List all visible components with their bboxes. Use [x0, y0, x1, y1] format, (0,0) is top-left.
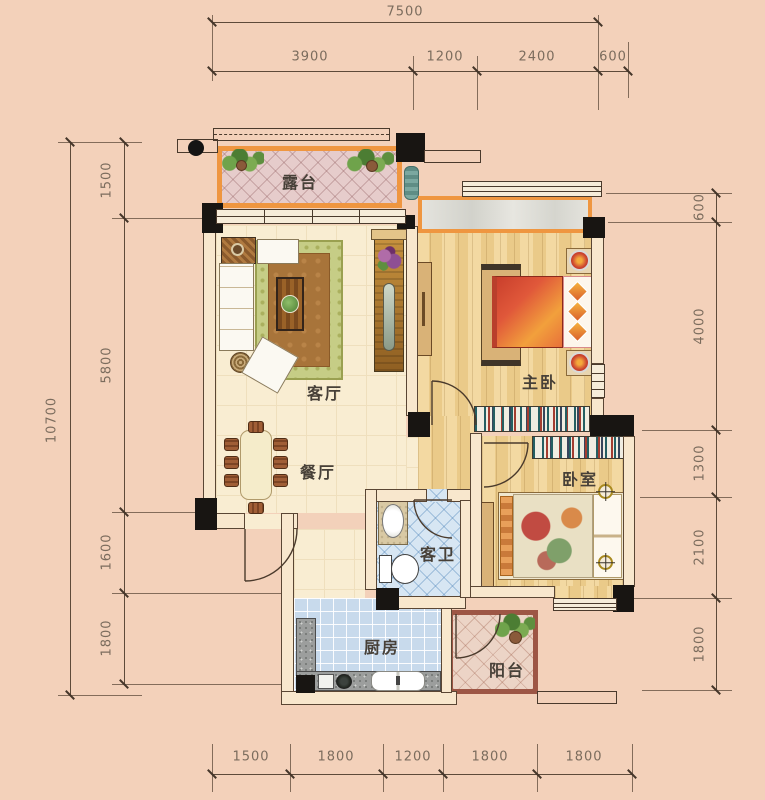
room-label-kitchen: 厨房	[364, 634, 400, 658]
porch-column-dot	[188, 140, 204, 156]
dim-label: 1800	[317, 750, 354, 765]
terrace-jar	[404, 166, 419, 200]
floor-hall-sliver	[406, 437, 418, 489]
dining-chair	[248, 502, 264, 514]
room-label-living: 客厅	[307, 380, 343, 404]
window-living-south-of-terrace	[216, 209, 406, 224]
bedroom-bed-duvet	[513, 494, 593, 578]
window-master-east	[591, 364, 605, 398]
table-lamp	[569, 352, 590, 373]
bath-sink	[382, 504, 404, 538]
closet-bedroom-north	[532, 436, 625, 459]
master-bedroom-door	[430, 379, 479, 429]
extension-line	[632, 744, 633, 792]
dim-line-left-segments	[124, 142, 125, 684]
dim-label: 600	[599, 50, 627, 65]
extension-line	[443, 744, 444, 792]
bedroom-bed-bolster	[500, 496, 513, 576]
dim-label: 4000	[693, 307, 708, 344]
extension-line	[212, 744, 213, 792]
dim-label: 2400	[518, 50, 555, 65]
window-master-north	[462, 181, 602, 197]
table-lamp	[569, 250, 590, 271]
column	[195, 498, 217, 530]
window-bedroom-south	[553, 598, 617, 611]
dim-line-left-total	[70, 142, 71, 695]
dim-label: 1600	[100, 533, 115, 570]
extension-line	[413, 56, 414, 110]
tv-wall-vase	[383, 283, 395, 351]
extension-line	[112, 684, 285, 685]
ceiling-lamp-symbol	[598, 484, 613, 499]
dim-label-top-total: 7500	[386, 5, 423, 20]
toilet-bowl	[391, 554, 419, 584]
dim-label: 1500	[100, 161, 115, 198]
wall-bedroom-west	[470, 433, 482, 598]
extension-line	[383, 744, 384, 792]
dim-label: 1800	[693, 625, 708, 662]
sofa-chaise	[257, 239, 299, 264]
corner-table-bowl	[231, 243, 244, 256]
bedroom-door	[482, 441, 530, 489]
column	[583, 217, 605, 238]
dim-line-bottom	[212, 774, 632, 775]
room-label-bathroom: 客卫	[420, 541, 456, 565]
room-label-master-bedroom: 主卧	[522, 369, 558, 393]
kitchen-faucet	[396, 676, 400, 685]
column	[376, 588, 399, 610]
wall-bedroom-south	[470, 586, 555, 598]
dim-label: 1800	[471, 750, 508, 765]
kitchen-appliance	[318, 674, 334, 689]
column	[590, 415, 634, 436]
floor-lower-hall	[294, 529, 365, 598]
dining-chair	[273, 456, 288, 469]
bathroom-door	[412, 498, 454, 540]
wall-bedroom-east	[623, 436, 635, 587]
dim-label-left-total: 10700	[45, 397, 60, 443]
master-wardrobe-handle	[422, 292, 425, 326]
balcony-south-step	[537, 691, 617, 704]
dim-label: 600	[693, 193, 708, 221]
dim-line-right	[716, 193, 717, 690]
extension-line	[290, 744, 291, 792]
eave-above-terrace	[213, 128, 390, 141]
column	[396, 133, 425, 162]
extension-line	[537, 744, 538, 792]
dim-label: 1200	[394, 750, 431, 765]
dim-label: 1500	[232, 750, 269, 765]
wall-kitchen-east	[441, 598, 452, 693]
extension-line	[608, 222, 732, 223]
dim-label: 5800	[100, 346, 115, 383]
dining-chair	[248, 421, 264, 433]
floor-bedroom-south	[555, 586, 613, 598]
tv-wall-cap	[371, 229, 407, 240]
dim-line-top-total	[212, 22, 598, 23]
dining-chair	[224, 456, 239, 469]
extension-line	[112, 593, 285, 594]
wall-bath-west	[365, 489, 377, 590]
master-bed-duvet	[492, 276, 563, 348]
sofa-body	[219, 263, 254, 351]
extension-line	[477, 56, 478, 110]
wall-west-upper	[203, 206, 216, 513]
ceiling-lamp-symbol	[598, 555, 613, 570]
dim-label: 1300	[693, 444, 708, 481]
wall-bottom	[281, 691, 457, 705]
room-label-bedroom: 卧室	[562, 466, 598, 490]
bay-window-master	[418, 196, 592, 233]
extension-line	[606, 193, 732, 194]
dining-chair	[273, 438, 288, 451]
floor-plan-canvas: 7500 3900 1200 2400 600 10700 1500 5800 …	[0, 0, 765, 800]
terrace-plant-left-pot	[236, 160, 247, 171]
column	[296, 675, 315, 693]
dim-label: 3900	[291, 50, 328, 65]
dim-label: 1200	[426, 50, 463, 65]
dim-label: 1800	[100, 619, 115, 656]
dining-table	[240, 430, 272, 500]
closet-master-south	[474, 406, 590, 432]
dining-chair	[224, 438, 239, 451]
dining-chair	[224, 474, 239, 487]
room-label-terrace: 露台	[282, 169, 318, 193]
wall-master-east-upper	[591, 236, 604, 364]
bay-window-top-step	[424, 150, 481, 163]
dim-label: 2100	[693, 528, 708, 565]
balcony-plant-pot	[509, 631, 522, 644]
wall-living-master	[406, 226, 418, 416]
room-label-dining: 餐厅	[300, 459, 336, 483]
tv-wall-flowers	[375, 245, 402, 272]
dining-chair	[273, 474, 288, 487]
coffee-table-plant	[281, 295, 299, 313]
entry-door	[243, 527, 301, 585]
kitchen-burner	[336, 674, 352, 689]
terrace-plant-right-pot	[366, 160, 378, 172]
dim-line-top-segments	[212, 71, 628, 72]
column	[408, 412, 430, 437]
room-label-balcony: 阳台	[489, 657, 525, 681]
dim-label: 1800	[565, 750, 602, 765]
